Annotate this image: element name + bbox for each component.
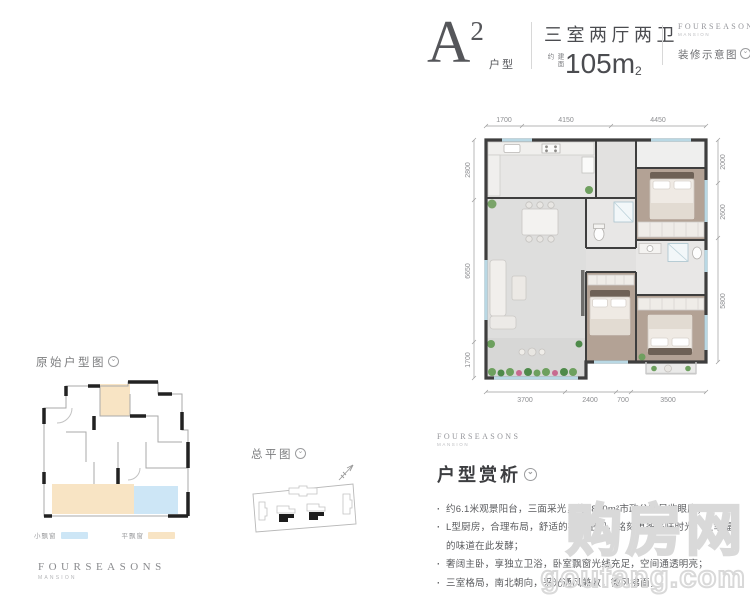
balcony-chair bbox=[539, 349, 545, 355]
original-plan-legend: 小飘窗 平飘窗 bbox=[34, 530, 175, 540]
blanket bbox=[648, 315, 692, 329]
area-superscript: 2 bbox=[635, 64, 642, 78]
header-divider-2 bbox=[662, 25, 663, 65]
brand-subname: MANSION bbox=[678, 33, 750, 38]
site-plan-title: 总平图⌄ bbox=[251, 446, 306, 462]
unit-superscript: 2 bbox=[470, 16, 484, 46]
analysis-bullet: 约6.1米观景阳台，三面采光，约4800m²市政公园尽收眼底； bbox=[437, 501, 737, 520]
kitchen-counter-l bbox=[488, 155, 500, 196]
svg-text:2000: 2000 bbox=[720, 154, 727, 170]
plant bbox=[585, 186, 593, 194]
kitchen-sink bbox=[504, 145, 520, 153]
brand-name: FOURSEASONS bbox=[678, 23, 750, 31]
chevron-circle-icon: ⌄ bbox=[295, 448, 306, 459]
balcony-table bbox=[528, 348, 536, 356]
analysis-title: 户型赏析⌄ bbox=[437, 461, 737, 487]
toilet bbox=[693, 247, 702, 259]
legend-label: 平飘窗 bbox=[122, 530, 145, 540]
bed-headboard bbox=[648, 348, 692, 355]
svg-text:700: 700 bbox=[617, 397, 629, 404]
legend-swatch-blue bbox=[61, 532, 88, 539]
plant bbox=[639, 354, 646, 361]
svg-text:4450: 4450 bbox=[650, 117, 666, 124]
chevron-circle-icon: ⌄ bbox=[524, 468, 537, 481]
site-plan-title-text: 总平图 bbox=[251, 449, 293, 461]
corridor-floor bbox=[586, 248, 636, 272]
site-buildings-highlighted bbox=[279, 512, 324, 522]
bay-area-blue bbox=[134, 486, 178, 514]
site-plan bbox=[243, 462, 365, 544]
plant bbox=[488, 200, 497, 209]
tv-unit bbox=[581, 270, 585, 316]
analysis-title-text: 户型赏析 bbox=[437, 465, 521, 485]
svg-text:6650: 6650 bbox=[465, 263, 472, 279]
blanket bbox=[650, 203, 694, 219]
svg-text:4150: 4150 bbox=[558, 117, 574, 124]
balcony-chair bbox=[519, 349, 525, 355]
dining-table bbox=[522, 209, 558, 235]
plant bbox=[651, 366, 657, 372]
compass-arrow-icon bbox=[339, 465, 353, 480]
svg-text:3500: 3500 bbox=[660, 397, 676, 404]
svg-text:3700: 3700 bbox=[517, 397, 533, 404]
bay-area-beige-top bbox=[100, 384, 130, 416]
header-divider-1 bbox=[531, 22, 532, 69]
stove bbox=[542, 144, 560, 153]
fridge bbox=[582, 157, 594, 173]
unit-letter: A bbox=[427, 9, 470, 75]
analysis-brand-logo: FOURSEASONS MANSION bbox=[437, 433, 737, 448]
bay-area-beige-bottom bbox=[52, 484, 134, 514]
small-balcony-table bbox=[665, 365, 672, 372]
chevron-circle-icon: ⌄ bbox=[108, 356, 119, 367]
sofa bbox=[490, 260, 506, 316]
analysis-bullets: 约6.1米观景阳台，三面采光，约4800m²市政公园尽收眼底； L型厨房，合理布… bbox=[437, 501, 737, 594]
site-buildings-outline bbox=[259, 486, 352, 520]
decoration-note: 装修示意图⌄ bbox=[678, 47, 750, 62]
poster-canvas: A2 户型 三室两厅两卫 建面约 105m2 FOURSEASONS MANSI… bbox=[0, 0, 750, 600]
svg-text:2800: 2800 bbox=[465, 162, 472, 178]
brand-name: FOURSEASONS bbox=[38, 562, 166, 573]
blanket bbox=[590, 319, 630, 335]
legend-label: 小飘窗 bbox=[34, 530, 57, 540]
plant bbox=[685, 366, 691, 372]
svg-text:1700: 1700 bbox=[465, 352, 472, 368]
sofa-chaise bbox=[490, 316, 516, 329]
brand-name: FOURSEASONS bbox=[437, 433, 737, 441]
original-floorplan bbox=[28, 372, 206, 524]
area-prefix: 建面约 bbox=[544, 53, 564, 75]
legend-item: 平飘窗 bbox=[122, 530, 176, 540]
room-spec: 三室两厅两卫 bbox=[544, 21, 662, 47]
analysis-bullet: 三室格局，南北朝向，采光通风兼收，微风拂面， bbox=[437, 575, 737, 594]
spec-block: 三室两厅两卫 建面约 105m2 bbox=[544, 21, 662, 78]
legend-item: 小飘窗 bbox=[34, 530, 88, 540]
equipment-platform-floor bbox=[636, 140, 706, 168]
analysis-section: FOURSEASONS MANSION 户型赏析⌄ 约6.1米观景阳台，三面采光… bbox=[437, 433, 737, 593]
analysis-bullet: 奢阔主卧，享独立卫浴，卧室飘窗光线充足，空间通透明亮； bbox=[437, 556, 737, 575]
original-plan-title: 原始户型图⌄ bbox=[36, 354, 119, 370]
svg-text:5800: 5800 bbox=[720, 293, 727, 309]
bed-headboard bbox=[590, 290, 630, 297]
area-value: 105m bbox=[565, 50, 635, 78]
chevron-circle-icon: ⌄ bbox=[740, 48, 750, 59]
wardrobe bbox=[638, 298, 704, 310]
unit-label: 户型 bbox=[489, 56, 515, 72]
svg-text:1700: 1700 bbox=[496, 117, 512, 124]
coffee-table bbox=[512, 276, 526, 300]
decorated-floorplan: 1700 4150 4450 3700 2400 700 3500 2800 6… bbox=[446, 110, 746, 408]
bed-headboard bbox=[650, 172, 694, 179]
header-brand-logo: FOURSEASONS MANSION bbox=[678, 23, 750, 38]
wardrobe bbox=[638, 222, 704, 237]
svg-text:2400: 2400 bbox=[582, 397, 598, 404]
area-row: 建面约 105m2 bbox=[544, 50, 662, 78]
brand-subname: MANSION bbox=[437, 443, 737, 448]
legend-swatch-beige bbox=[148, 532, 175, 539]
toilet bbox=[594, 228, 604, 241]
entry-hall-floor bbox=[596, 140, 636, 198]
decoration-note-text: 装修示意图 bbox=[678, 49, 738, 61]
original-plan-fills bbox=[52, 384, 178, 514]
wardrobe bbox=[588, 275, 634, 285]
footer-brand-logo: FOURSEASONS MANSION bbox=[38, 562, 166, 581]
unit-type-block: A2 户型 bbox=[427, 12, 532, 76]
svg-text:2600: 2600 bbox=[720, 204, 727, 220]
brand-subname: MANSION bbox=[38, 576, 166, 581]
analysis-bullet: L型厨房，合理布局，舒适的操作空间，铭刻更多美味时光，让幸福的味道在此发酵； bbox=[437, 519, 737, 556]
original-plan-title-text: 原始户型图 bbox=[36, 357, 106, 369]
